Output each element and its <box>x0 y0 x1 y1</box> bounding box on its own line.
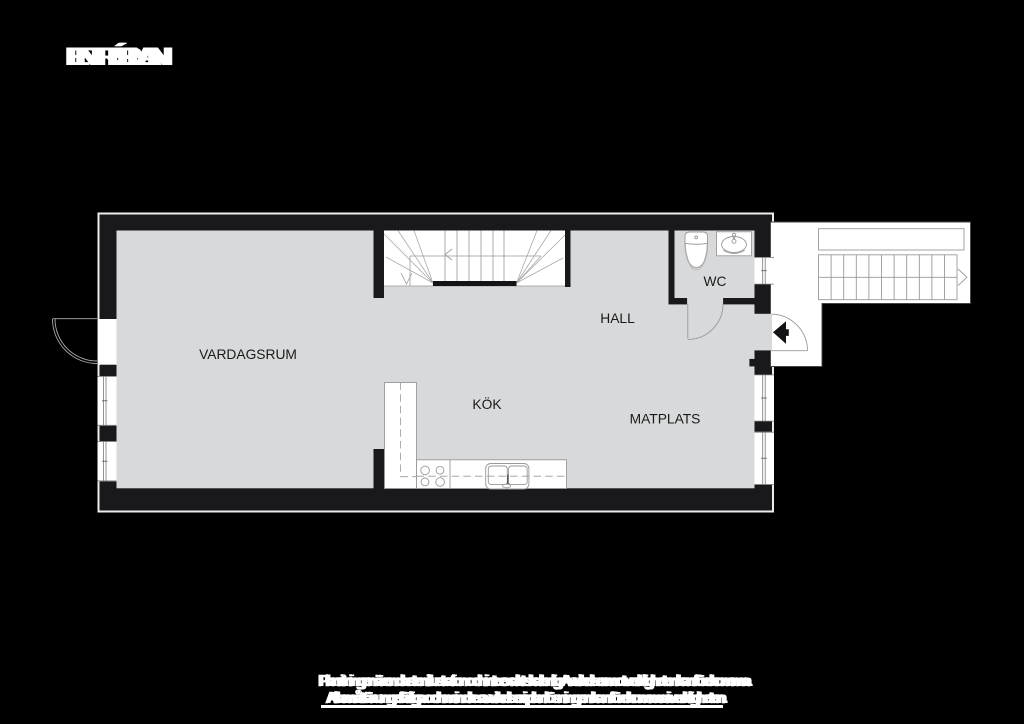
svg-text:KÖK: KÖK <box>472 395 502 412</box>
svg-text:MATPLATS: MATPLATS <box>630 411 701 426</box>
svg-text:VARDAGSRUM: VARDAGSRUM <box>199 347 297 362</box>
svg-text:WC: WC <box>704 274 727 289</box>
svg-text:HALL: HALL <box>600 311 635 326</box>
